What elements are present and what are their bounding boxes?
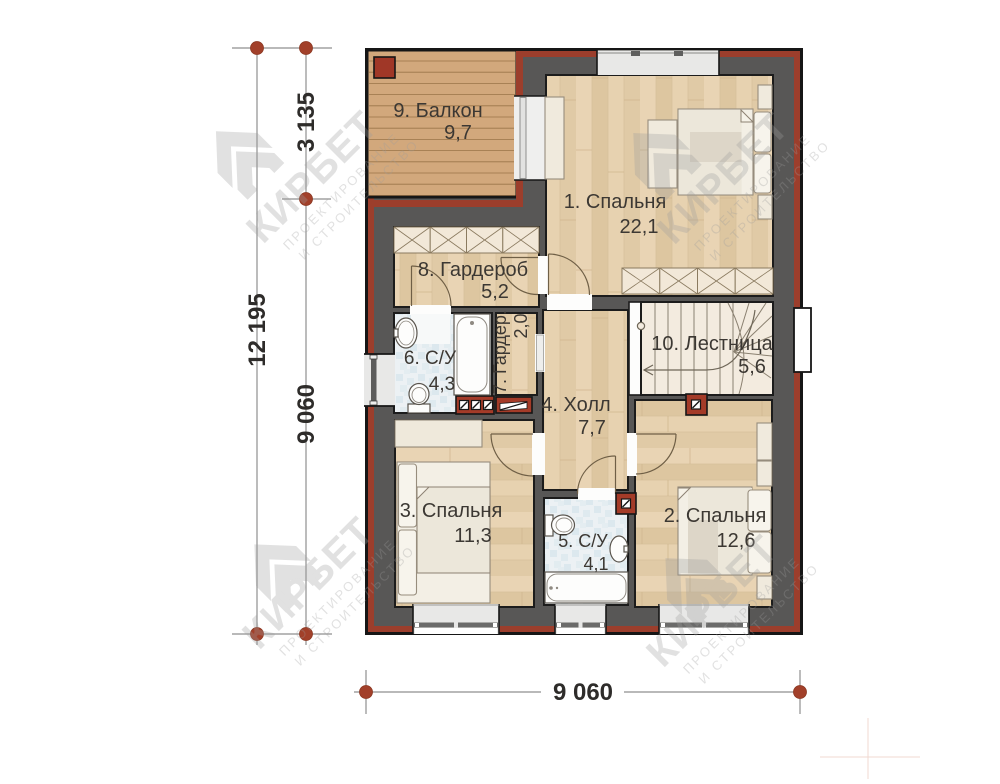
svg-text:2. Спальня: 2. Спальня xyxy=(664,505,767,527)
svg-text:8. Гардероб: 8. Гардероб xyxy=(418,259,528,281)
svg-text:4. Холл: 4. Холл xyxy=(541,394,610,416)
svg-text:9 060: 9 060 xyxy=(293,384,320,444)
svg-text:6. С/У: 6. С/У xyxy=(404,348,457,369)
svg-text:3. Спальня: 3. Спальня xyxy=(400,500,503,522)
svg-text:9. Балкон: 9. Балкон xyxy=(393,100,482,122)
svg-text:4,3: 4,3 xyxy=(429,374,455,395)
svg-text:12 195: 12 195 xyxy=(244,293,271,366)
svg-text:10. Лестница: 10. Лестница xyxy=(651,333,773,355)
svg-text:5,6: 5,6 xyxy=(738,356,766,378)
svg-text:9 060: 9 060 xyxy=(553,679,613,706)
svg-text:11,3: 11,3 xyxy=(454,525,491,547)
svg-text:7,7: 7,7 xyxy=(578,417,606,439)
svg-text:7. Гардер.: 7. Гардер. xyxy=(490,310,510,394)
svg-text:5,2: 5,2 xyxy=(481,281,509,303)
svg-text:2,0: 2,0 xyxy=(511,313,531,338)
svg-text:9,7: 9,7 xyxy=(444,122,472,144)
svg-text:4,1: 4,1 xyxy=(583,554,608,574)
svg-text:1. Спальня: 1. Спальня xyxy=(564,191,667,213)
svg-text:5. С/У: 5. С/У xyxy=(558,531,608,551)
